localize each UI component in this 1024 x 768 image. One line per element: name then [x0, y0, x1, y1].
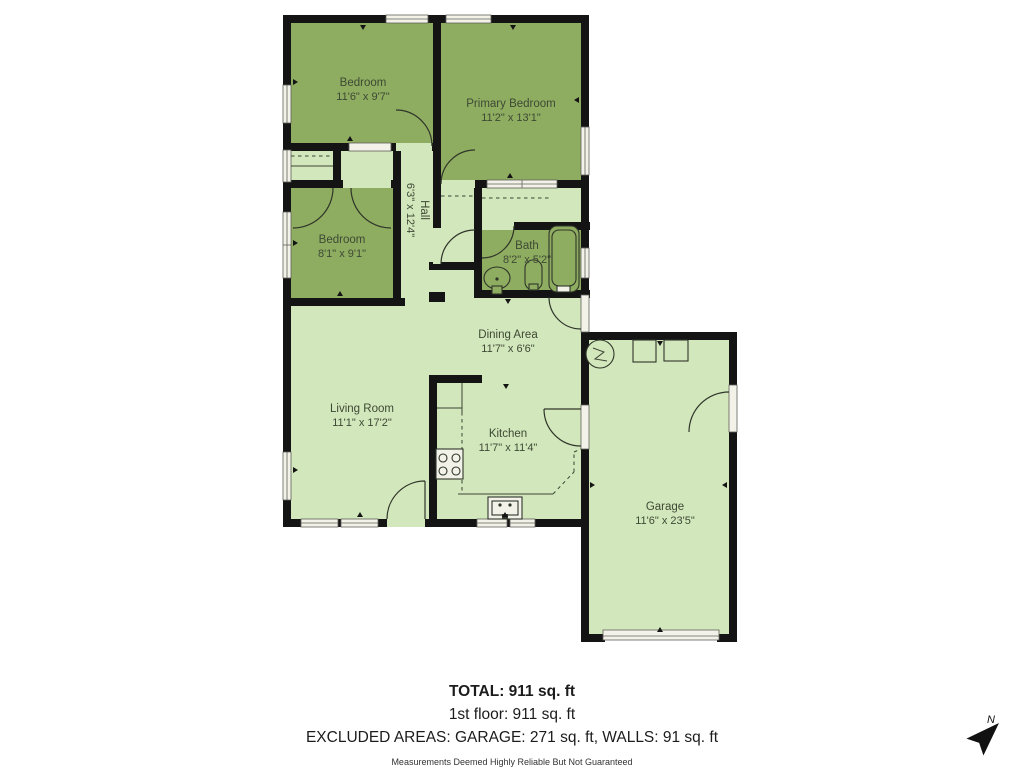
- front-door-opening: [387, 519, 425, 527]
- floorplan-svg: Bedroom 11'6" x 9'7" Primary Bedroom 11'…: [0, 0, 1024, 768]
- svg-text:Bedroom: Bedroom: [340, 77, 387, 89]
- svg-text:Bath: Bath: [515, 240, 539, 252]
- water-heater-icon: [586, 340, 614, 368]
- garage-side-door: [729, 385, 737, 432]
- svg-text:11'6" x 23'5": 11'6" x 23'5": [635, 515, 695, 527]
- doorway-kitchen-garage: [581, 405, 589, 449]
- svg-text:Garage: Garage: [646, 501, 684, 513]
- bathtub-icon: [549, 226, 579, 292]
- doorway-primary-bedroom: [441, 180, 475, 188]
- excluded-areas-text: EXCLUDED AREAS: GARAGE: 271 sq. ft, WALL…: [0, 726, 1024, 749]
- doorway-dining-garage: [581, 295, 589, 332]
- svg-text:8'1" x 9'1": 8'1" x 9'1": [318, 248, 366, 260]
- doorway-hall: [433, 228, 441, 264]
- svg-text:Hall: Hall: [418, 200, 430, 220]
- svg-text:Kitchen: Kitchen: [489, 428, 527, 440]
- footer-summary: TOTAL: 911 sq. ft 1st floor: 911 sq. ft …: [0, 680, 1024, 768]
- total-area-text: TOTAL: 911 sq. ft: [0, 680, 1024, 703]
- room-fill-garage: [586, 336, 733, 638]
- cased-opening: [349, 143, 391, 151]
- svg-text:11'2" x 13'1": 11'2" x 13'1": [481, 112, 541, 124]
- stove-icon: [436, 449, 463, 479]
- doorway-bedroom-top: [396, 143, 432, 151]
- svg-text:11'7" x 11'4": 11'7" x 11'4": [479, 442, 538, 454]
- svg-text:11'7" x 6'6": 11'7" x 6'6": [481, 343, 534, 355]
- svg-text:8'2" x 5'2": 8'2" x 5'2": [503, 254, 551, 266]
- svg-text:Primary Bedroom: Primary Bedroom: [466, 98, 555, 110]
- svg-text:Dining Area: Dining Area: [478, 329, 538, 341]
- floorplan-page: Bedroom 11'6" x 9'7" Primary Bedroom 11'…: [0, 0, 1024, 768]
- svg-text:11'1" x 17'2": 11'1" x 17'2": [332, 417, 392, 429]
- svg-text:11'6" x 9'7": 11'6" x 9'7": [336, 91, 389, 103]
- doorway-bath: [482, 222, 514, 230]
- svg-text:6'3" x 12'4": 6'3" x 12'4": [404, 183, 416, 237]
- appliance-square-2: [664, 340, 688, 361]
- floor-area-text: 1st floor: 911 sq. ft: [0, 703, 1024, 726]
- disclaimer-text: Measurements Deemed Highly Reliable But …: [0, 756, 1024, 768]
- svg-text:Living Room: Living Room: [330, 403, 394, 415]
- svg-text:Bedroom: Bedroom: [319, 234, 366, 246]
- appliance-square-1: [633, 340, 656, 362]
- doorway-bedroom-mid: [343, 180, 391, 188]
